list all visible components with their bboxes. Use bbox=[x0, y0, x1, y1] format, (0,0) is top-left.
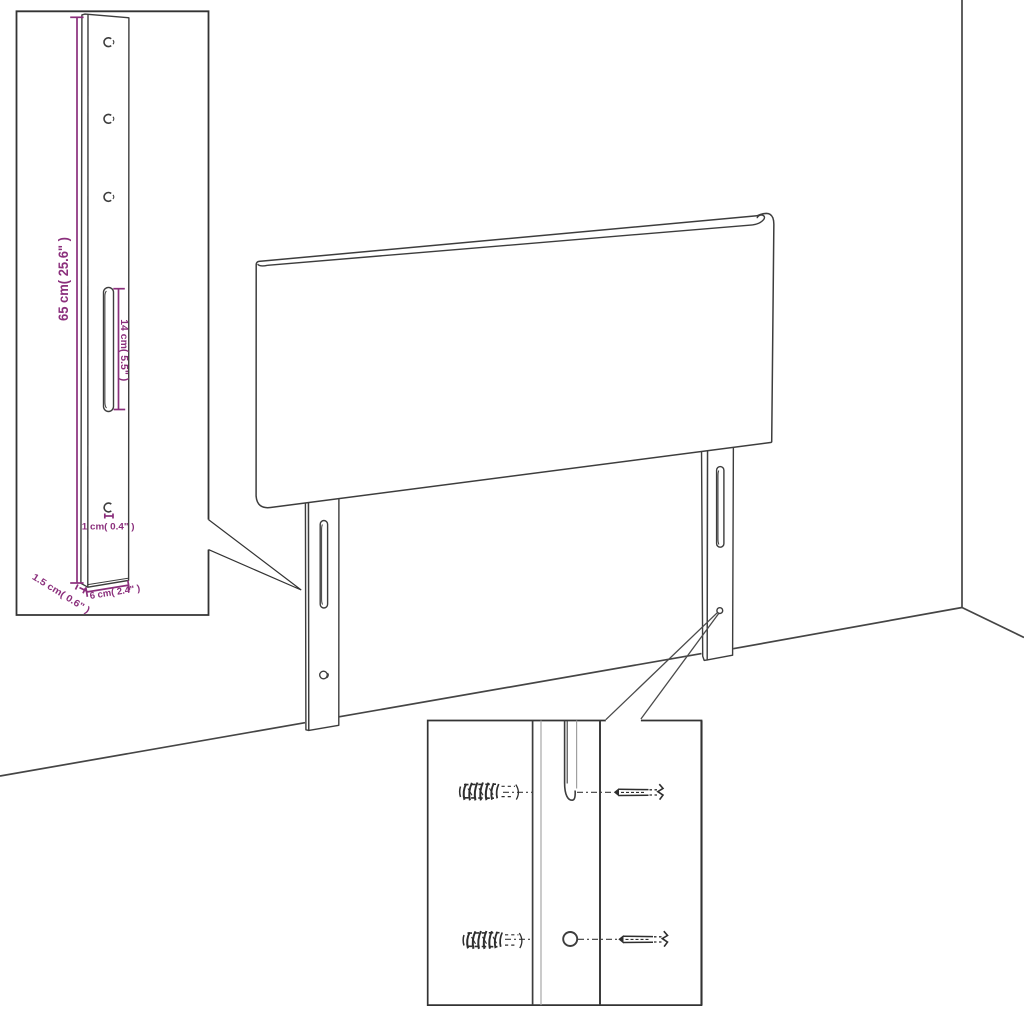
svg-text:65 cm( 25.6" ): 65 cm( 25.6" ) bbox=[55, 237, 71, 321]
svg-text:14 cm( 5.5" ): 14 cm( 5.5" ) bbox=[118, 319, 129, 381]
svg-text:1 cm( 0.4" ): 1 cm( 0.4" ) bbox=[82, 521, 135, 532]
